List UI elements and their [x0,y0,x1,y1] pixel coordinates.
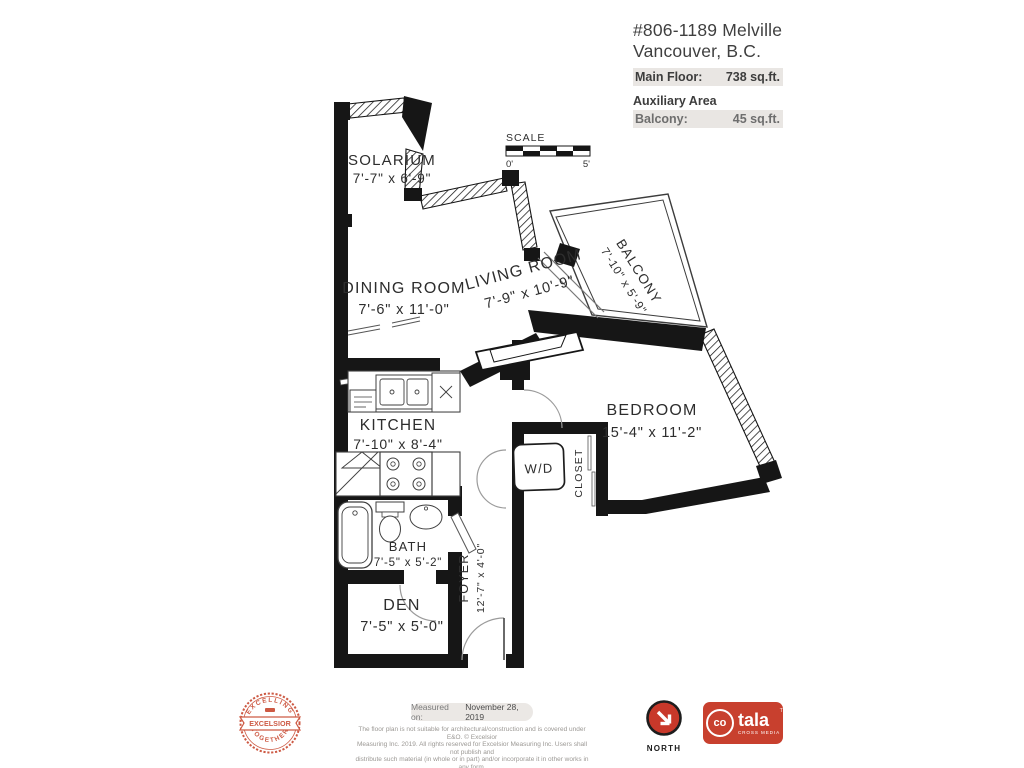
room-closet: CLOSET [573,448,585,497]
bedroom-window [700,329,777,473]
wd-label: W/D [524,460,553,476]
svg-text:7'-5" x 5'-2": 7'-5" x 5'-2" [374,557,442,569]
svg-text:SOLARIUM: SOLARIUM [348,152,436,169]
closet-rod [588,436,595,506]
wall-bottom-right [506,654,524,668]
svg-text:7'-7" x 6'-9": 7'-7" x 6'-9" [353,171,431,186]
wall-jog-dining [334,394,348,406]
wall-den-divider-left [334,570,404,584]
room-bath: BATH 7'-5" x 5'-2" [374,539,442,569]
measured-on-date: November 28, 2019 [465,702,533,722]
kitchen-double-door-top [477,450,506,479]
svg-text:BATH: BATH [389,539,428,554]
cotala-wordmark: tala TM CROSS MEDIA [738,711,780,735]
scale-five: 5' [583,159,590,170]
room-bedroom: BEDROOM 15'-4" x 11'-2" [602,402,702,441]
room-kitchen: KITCHEN 7'-10" x 8'-4" [353,417,443,452]
svg-text:FOYER: FOYER [457,553,471,602]
north-label: NORTH [643,744,685,753]
badge-crown-icon [265,708,275,712]
room-foyer: FOYER 12'-7" x 4'-0" [457,543,487,613]
entry-door-arc [462,618,504,660]
svg-text:KITCHEN: KITCHEN [360,417,436,434]
scale-label: SCALE [506,132,545,144]
floorplan-page: #806-1189 Melville Vancouver, B.C. Main … [0,0,1024,768]
wall-bedroom-bottom [596,477,770,514]
cotala-tagline: CROSS MEDIA [738,730,780,735]
hood-appliance [350,390,376,412]
badge-ribbon-text: EXCELSIOR [249,719,291,728]
svg-text:DEN: DEN [383,597,420,614]
washer-dryer: W/D [513,443,565,491]
wall-jog-solarium [334,214,352,227]
north-arrow-icon [644,698,684,738]
svg-text:15'-4" x 11'-2": 15'-4" x 11'-2" [602,425,702,441]
svg-text:BEDROOM: BEDROOM [606,402,697,419]
cotala-co-text: co [714,717,727,729]
cotala-tala-text: tala [738,711,780,729]
svg-text:7'-6" x 11'-0": 7'-6" x 11'-0" [358,302,449,318]
disclaimer: The floor plan is not suitable for archi… [352,726,592,768]
kitchen-double-door-bottom [477,479,506,508]
wall-bottom-left [334,654,468,668]
room-dining: DINING ROOM 7'-6" x 11'-0" [342,280,465,318]
toilet-tank [376,502,404,512]
measured-on-label: Measured on: [411,702,458,722]
wall-block-b [502,170,519,186]
measured-on-pill: Measured on: November 28, 2019 [411,703,533,721]
disclaimer-line-1: The floor plan is not suitable for archi… [352,726,592,741]
wall-corner-tl [334,102,350,120]
wall-kitchen-top [334,358,440,371]
north-indicator: NORTH [643,698,685,753]
wall-solarium-pillar [402,96,432,151]
scale-zero: 0' [506,159,513,170]
solarium-top-window [348,98,407,118]
disclaimer-line-2: Measuring Inc. 2019. All rights reserved… [352,741,592,756]
wall-block-a [404,188,422,201]
svg-text:CLOSET: CLOSET [573,448,585,497]
svg-text:12'-7" x 4'-0": 12'-7" x 4'-0" [475,543,487,613]
stove [380,452,432,496]
svg-text:DINING ROOM: DINING ROOM [342,280,465,297]
bath-door-leaf [451,513,476,553]
cotala-logo: co tala TM CROSS MEDIA [703,702,783,744]
room-solarium: SOLARIUM 7'-7" x 6'-9" [348,152,436,186]
floorplan-drawing: W/D SCALE 0' 5' [0,0,1024,768]
wall-wd-top [512,422,608,434]
svg-text:7'-10" x 8'-4": 7'-10" x 8'-4" [353,436,443,452]
excelsior-badge: EXCELLING TOGETHER EXCELSIOR [238,691,302,755]
cotala-tm: TM [780,708,787,714]
living-top-window [420,178,507,209]
svg-text:7'-5" x 5'-0": 7'-5" x 5'-0" [360,619,443,635]
living-right-window [511,182,537,250]
cotala-co-icon: co [706,709,734,737]
disclaimer-line-3: distribute such material (in whole or in… [352,756,592,768]
room-den: DEN 7'-5" x 5'-0" [360,597,443,635]
wall-bath-right-upper [448,498,462,516]
scale-bar: SCALE 0' 5' [506,132,590,170]
